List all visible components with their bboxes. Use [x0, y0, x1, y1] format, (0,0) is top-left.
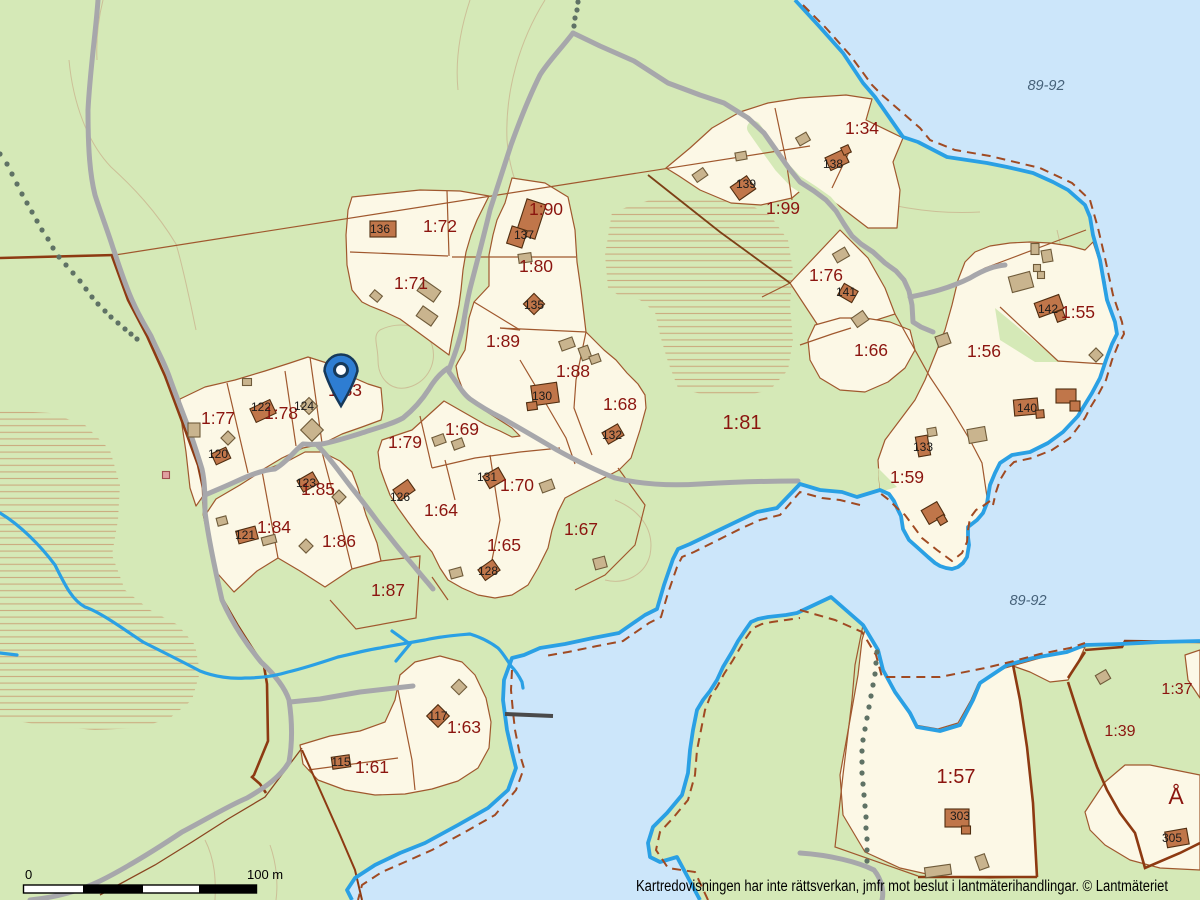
svg-text:1:68: 1:68: [603, 394, 637, 414]
svg-text:1:56: 1:56: [967, 341, 1001, 361]
svg-text:138: 138: [823, 157, 843, 171]
svg-text:1:63: 1:63: [447, 717, 481, 737]
svg-text:124: 124: [294, 399, 314, 413]
svg-text:123: 123: [296, 476, 316, 490]
svg-text:303: 303: [950, 809, 970, 823]
svg-text:1:64: 1:64: [424, 500, 458, 520]
svg-text:89-92: 89-92: [1009, 593, 1046, 609]
svg-text:1:81: 1:81: [723, 412, 762, 434]
svg-text:305: 305: [1162, 831, 1182, 845]
svg-text:117: 117: [428, 709, 447, 723]
svg-text:1:76: 1:76: [809, 265, 843, 285]
svg-text:1:39: 1:39: [1104, 723, 1135, 740]
svg-text:1:79: 1:79: [388, 432, 422, 452]
svg-text:1:66: 1:66: [854, 340, 888, 360]
svg-text:137: 137: [514, 228, 534, 242]
svg-text:1:88: 1:88: [556, 361, 590, 381]
svg-text:1:34: 1:34: [845, 118, 879, 138]
svg-text:142: 142: [1038, 302, 1058, 316]
svg-text:139: 139: [736, 177, 756, 191]
svg-text:1:70: 1:70: [500, 475, 534, 495]
svg-text:132: 132: [602, 428, 622, 442]
svg-text:100 m: 100 m: [247, 867, 283, 882]
svg-text:1:55: 1:55: [1061, 302, 1095, 322]
svg-text:115: 115: [331, 755, 350, 769]
svg-text:1:61: 1:61: [355, 757, 389, 777]
svg-text:1:87: 1:87: [371, 580, 405, 600]
svg-text:1:89: 1:89: [486, 331, 520, 351]
svg-text:128: 128: [478, 564, 498, 578]
svg-text:126: 126: [390, 490, 410, 504]
svg-text:1:59: 1:59: [890, 467, 924, 487]
svg-text:1:57: 1:57: [937, 766, 976, 788]
svg-text:121: 121: [235, 528, 255, 542]
svg-text:1:77: 1:77: [201, 408, 235, 428]
svg-text:131: 131: [477, 470, 497, 484]
svg-text:1:65: 1:65: [487, 535, 521, 555]
svg-text:1:86: 1:86: [322, 531, 356, 551]
svg-text:122: 122: [251, 400, 271, 414]
svg-text:135: 135: [524, 298, 544, 312]
svg-text:1:90: 1:90: [529, 199, 563, 219]
svg-text:1:69: 1:69: [445, 419, 479, 439]
svg-text:1:72: 1:72: [423, 216, 457, 236]
svg-text:1:71: 1:71: [394, 273, 428, 293]
svg-text:136: 136: [370, 222, 390, 236]
svg-text:1:99: 1:99: [766, 198, 800, 218]
svg-text:1:80: 1:80: [519, 256, 553, 276]
svg-text:1:67: 1:67: [564, 519, 598, 539]
svg-text:130: 130: [532, 389, 552, 403]
svg-text:140: 140: [1017, 401, 1037, 415]
svg-text:89-92: 89-92: [1027, 78, 1064, 94]
svg-text:Kartredovisningen har inte rät: Kartredovisningen har inte rättsverkan, …: [636, 878, 1169, 895]
svg-text:120: 120: [208, 447, 228, 461]
svg-text:Å: Å: [1168, 782, 1184, 809]
svg-text:0: 0: [25, 867, 32, 882]
svg-text:1:37: 1:37: [1161, 681, 1192, 698]
svg-text:141: 141: [836, 285, 856, 299]
svg-text:133: 133: [913, 440, 933, 454]
svg-text:1:84: 1:84: [257, 517, 291, 537]
